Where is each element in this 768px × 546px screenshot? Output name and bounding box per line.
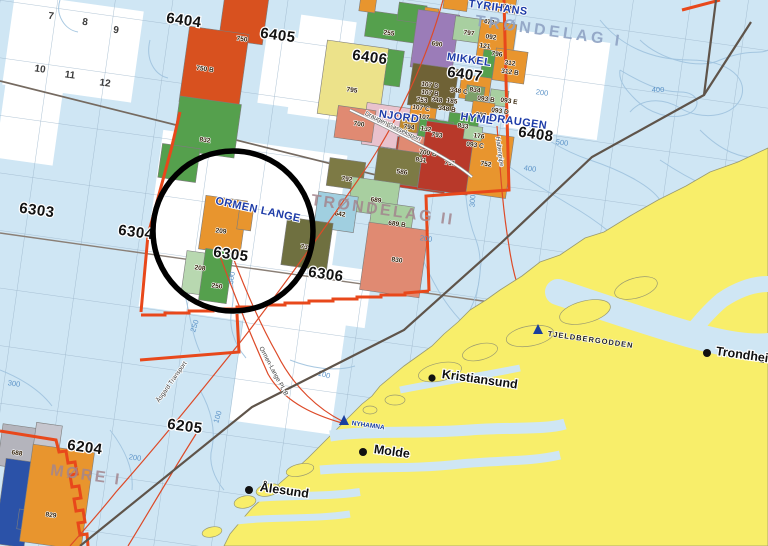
svg-text:12: 12 [99, 77, 112, 90]
svg-text:400: 400 [652, 85, 665, 94]
alesund-dot [245, 486, 253, 494]
kristiansund-dot [428, 374, 435, 381]
svg-text:300: 300 [467, 194, 477, 207]
map-canvas[interactable]: 750 750 B 832 255 690 797 092 121 796 47… [0, 0, 768, 546]
svg-text:400: 400 [523, 163, 537, 174]
trondheim-dot [703, 349, 711, 357]
molde-dot [359, 448, 367, 456]
svg-text:10: 10 [34, 63, 47, 76]
licence-block-orange[interactable] [359, 0, 377, 13]
svg-text:200: 200 [128, 452, 142, 463]
licence-map[interactable]: 750 750 B 832 255 690 797 092 121 796 47… [0, 0, 768, 546]
svg-text:200: 200 [535, 87, 549, 98]
svg-text:11: 11 [64, 69, 76, 81]
svg-text:200: 200 [419, 233, 433, 244]
svg-text:500: 500 [555, 137, 569, 148]
svg-text:300: 300 [7, 378, 21, 389]
